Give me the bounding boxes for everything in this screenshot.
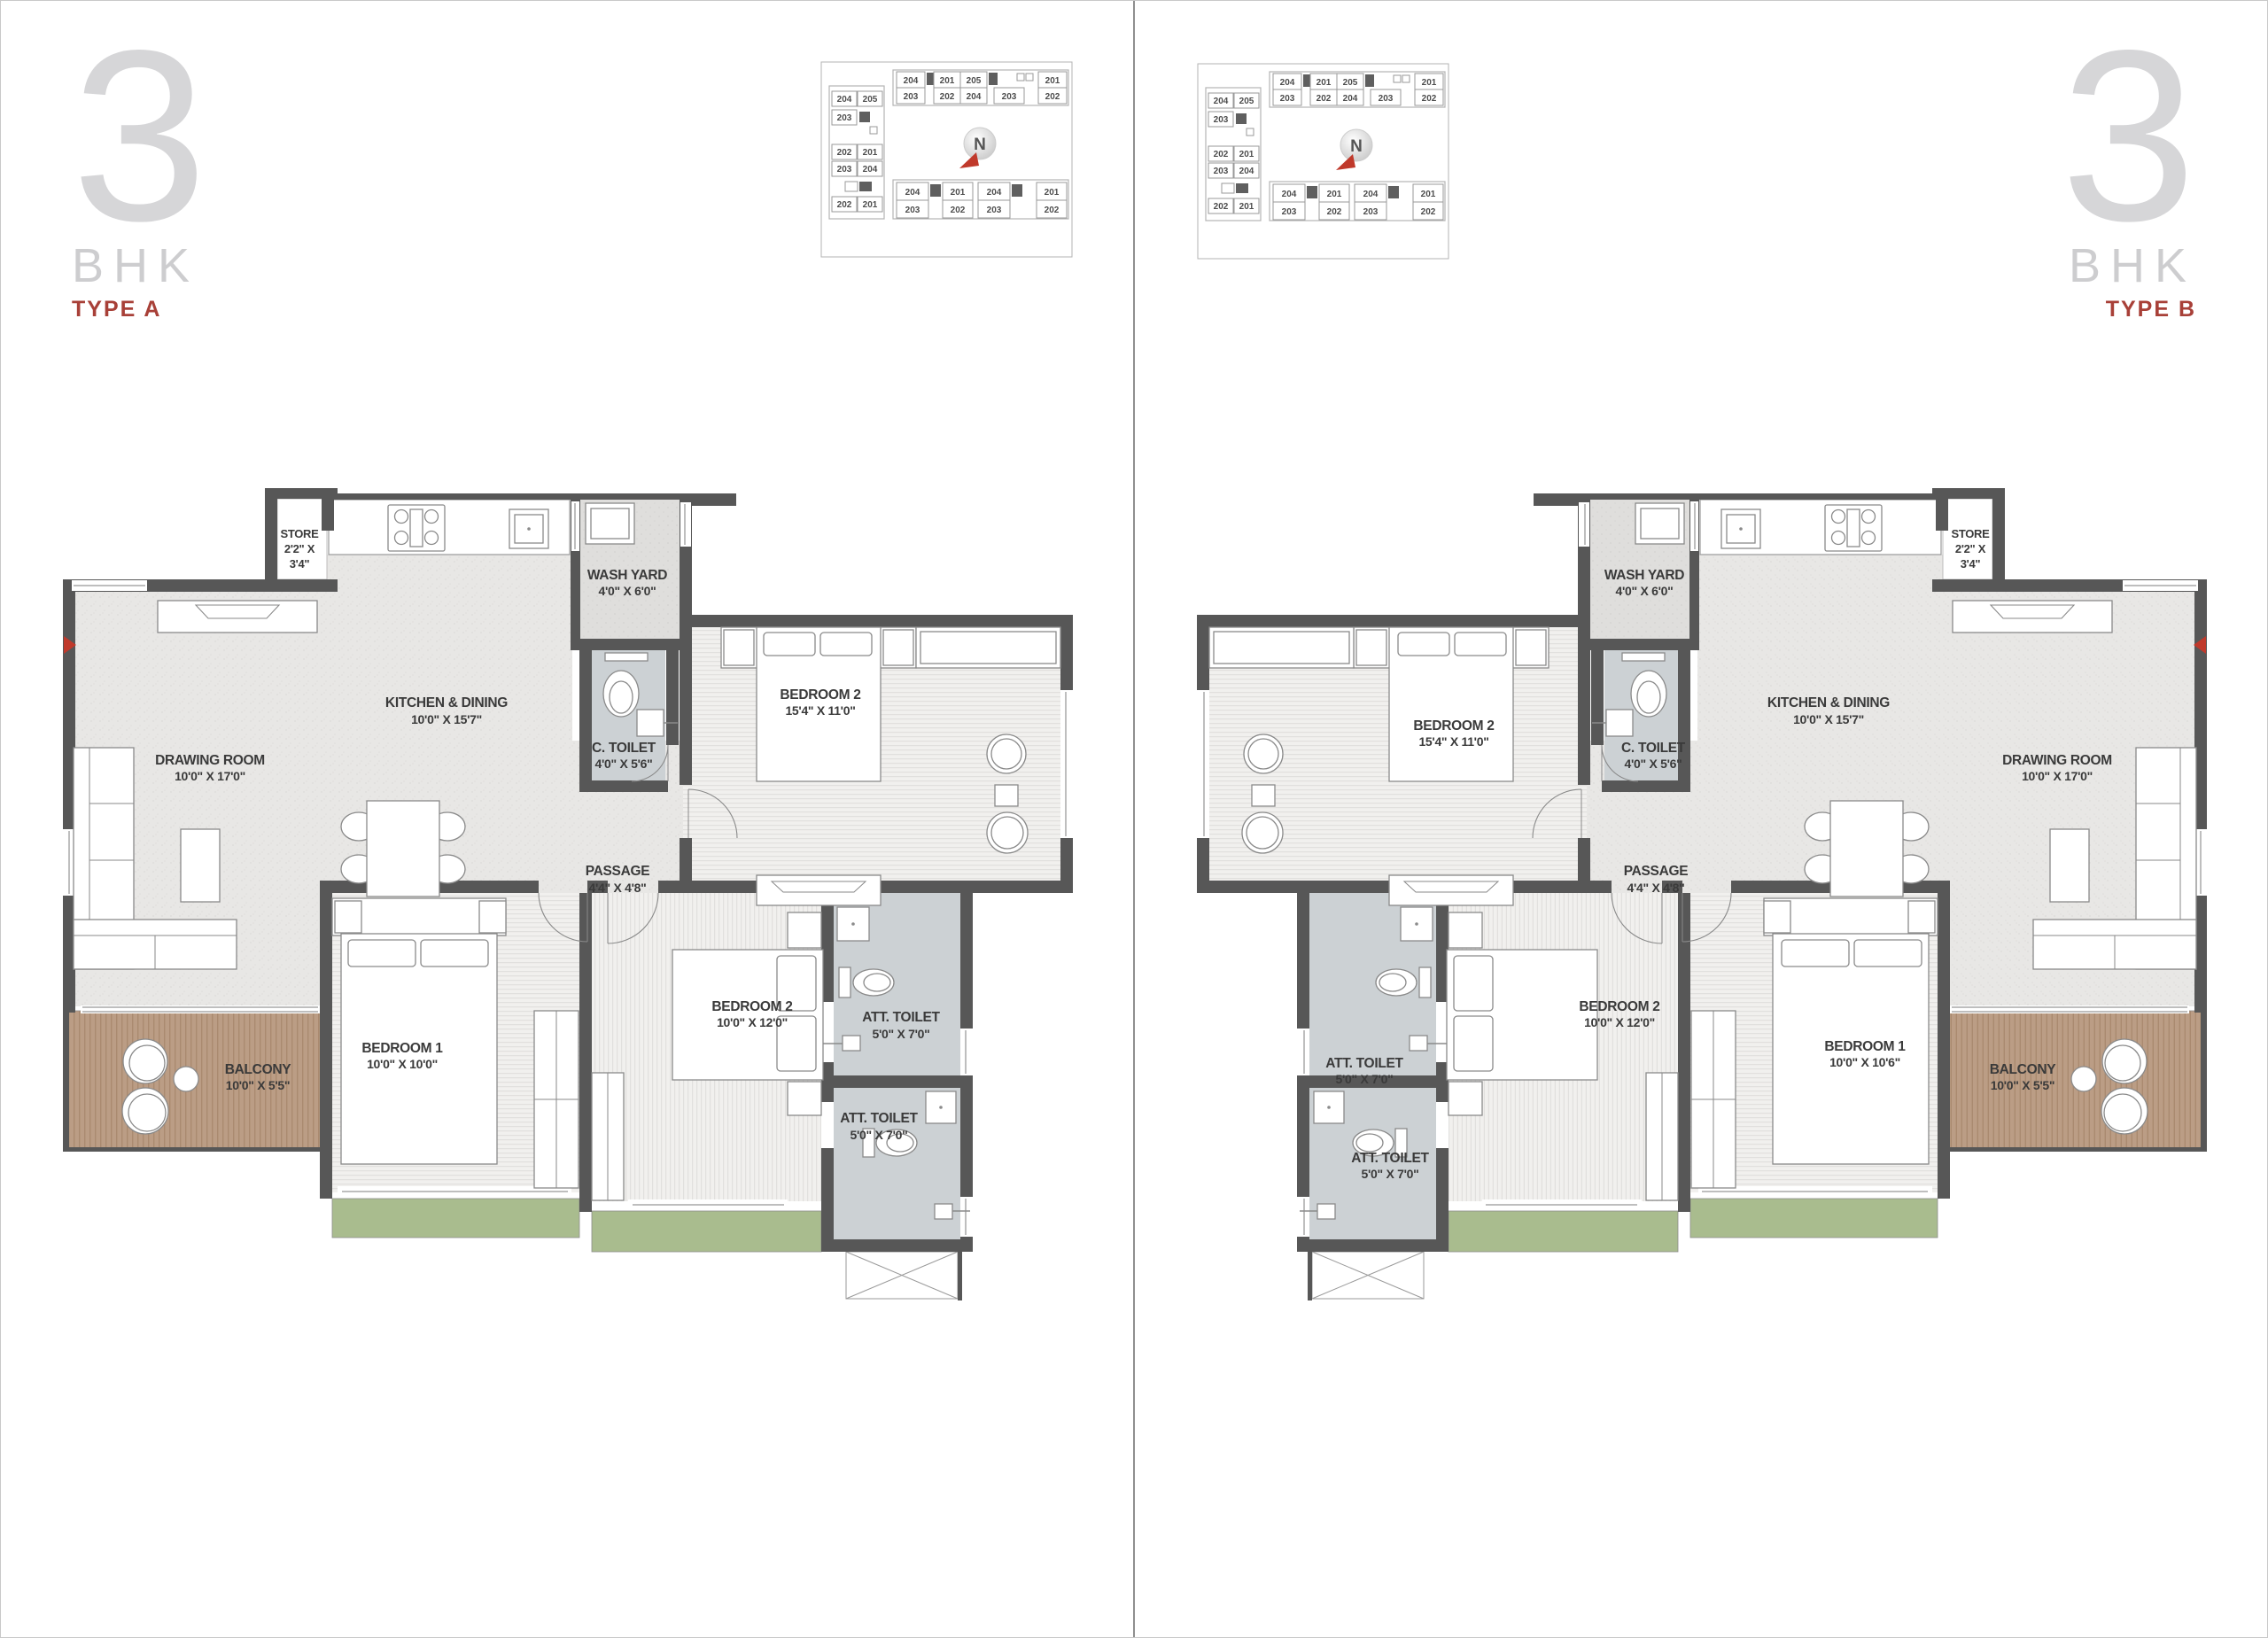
svg-text:204: 204 — [905, 188, 920, 198]
svg-text:204: 204 — [837, 95, 852, 105]
svg-text:10'0" X 10'0": 10'0" X 10'0" — [367, 1057, 438, 1071]
svg-text:202: 202 — [940, 92, 955, 102]
svg-text:10'0" X 5'5": 10'0" X 5'5" — [226, 1078, 290, 1092]
title-typea-label: TYPE A — [72, 297, 207, 322]
svg-text:5'0" X 7'0": 5'0" X 7'0" — [1336, 1072, 1394, 1086]
svg-text:4'0" X 5'6": 4'0" X 5'6" — [1625, 757, 1682, 771]
svg-text:201: 201 — [1422, 78, 1437, 88]
svg-text:203: 203 — [1282, 207, 1297, 217]
svg-text:202: 202 — [837, 200, 852, 210]
svg-text:10'0" X 12'0": 10'0" X 12'0" — [1584, 1015, 1655, 1029]
title-bhk-a: BHK — [72, 238, 207, 293]
floor-plan-type-b: DRAWING ROOM 10'0" X 17'0" KITCHEN & DIN… — [1197, 488, 2207, 1321]
svg-text:10'0" X 5'5": 10'0" X 5'5" — [1991, 1078, 2054, 1092]
svg-text:2'2" X: 2'2" X — [1955, 542, 1986, 555]
room-label-bedroom1-a: BEDROOM 1 — [361, 1041, 443, 1056]
room-label-passage-a: PASSAGE — [586, 864, 650, 879]
room-label-bedroom2bottom-a: BEDROOM 2 — [711, 999, 792, 1014]
svg-text:203: 203 — [1002, 92, 1017, 102]
svg-text:202: 202 — [1421, 207, 1436, 217]
key-plan-type-b: 204 205 203 202 201 203 204 202 201 204 … — [1197, 63, 1449, 260]
svg-text:5'0" X 7'0": 5'0" X 7'0" — [873, 1027, 930, 1041]
room-label-washyard-a: WASH YARD — [587, 568, 667, 583]
svg-text:204: 204 — [1282, 190, 1297, 199]
svg-text:203: 203 — [1363, 207, 1379, 217]
svg-text:204: 204 — [1280, 78, 1295, 88]
svg-text:201: 201 — [1045, 188, 1060, 198]
room-label-atttoilet-lower-a: ATT. TOILET — [840, 1111, 918, 1126]
room-label-balcony-b: BALCONY — [1990, 1062, 2056, 1077]
svg-text:202: 202 — [1214, 150, 1229, 159]
svg-text:205: 205 — [863, 95, 878, 105]
svg-text:205: 205 — [967, 76, 982, 86]
svg-text:15'4" X 11'0": 15'4" X 11'0" — [785, 703, 855, 718]
svg-text:201: 201 — [1045, 76, 1060, 86]
svg-text:201: 201 — [940, 76, 955, 86]
svg-text:201: 201 — [1317, 78, 1332, 88]
room-label-bedroom2top-b: BEDROOM 2 — [1413, 718, 1494, 734]
svg-text:3'4": 3'4" — [290, 557, 310, 571]
room-label-bedroom2bottom-b: BEDROOM 2 — [1579, 999, 1659, 1014]
svg-text:203: 203 — [1379, 94, 1394, 104]
title-typeb-label: TYPE B — [2061, 297, 2196, 322]
svg-text:202: 202 — [951, 206, 966, 215]
title-type-b: 3 BHK TYPE B — [2061, 36, 2196, 322]
room-label-atttoilet-lower-b: ATT. TOILET — [1351, 1151, 1429, 1166]
svg-text:10'0" X 17'0": 10'0" X 17'0" — [175, 769, 245, 783]
svg-text:204: 204 — [904, 76, 919, 86]
svg-text:201: 201 — [1239, 202, 1254, 212]
room-label-washyard-b: WASH YARD — [1604, 568, 1684, 583]
svg-text:5'0" X 7'0": 5'0" X 7'0" — [1362, 1167, 1419, 1181]
key-plan-a-bottom-strip: 204 201 204 201 203 202 203 202 — [897, 182, 1067, 218]
svg-text:4'4" X 4'8": 4'4" X 4'8" — [589, 881, 647, 895]
svg-text:202: 202 — [1045, 206, 1060, 215]
title-type-a: 3 BHK TYPE A — [72, 36, 207, 322]
svg-text:202: 202 — [837, 148, 852, 158]
svg-text:202: 202 — [1422, 94, 1437, 104]
svg-text:202: 202 — [1214, 202, 1229, 212]
room-label-atttoilet-upper-a: ATT. TOILET — [862, 1010, 940, 1025]
svg-text:202: 202 — [1317, 94, 1332, 104]
svg-text:N: N — [974, 136, 986, 154]
svg-text:201: 201 — [863, 148, 878, 158]
svg-text:205: 205 — [1239, 97, 1254, 106]
room-label-ctoilet-b: C. TOILET — [1621, 741, 1686, 756]
title-number-b: 3 — [2061, 36, 2196, 237]
svg-text:201: 201 — [1421, 190, 1436, 199]
room-label-kitchen-b: KITCHEN & DINING — [1767, 695, 1890, 710]
svg-text:204: 204 — [987, 188, 1002, 198]
svg-text:3'4": 3'4" — [1961, 557, 1981, 571]
room-label-kitchen-a: KITCHEN & DINING — [385, 695, 508, 710]
room-label-bedroom2top-a: BEDROOM 2 — [780, 687, 860, 703]
title-number-a: 3 — [72, 36, 207, 237]
svg-text:10'0" X 12'0": 10'0" X 12'0" — [717, 1015, 788, 1029]
svg-text:203: 203 — [905, 206, 920, 215]
svg-text:203: 203 — [987, 206, 1002, 215]
room-label-balcony-a: BALCONY — [225, 1062, 291, 1077]
svg-text:203: 203 — [1214, 115, 1229, 125]
room-label-ctoilet-a: C. TOILET — [592, 741, 656, 756]
center-divider — [1133, 1, 1135, 1638]
room-label-store-b: STORE — [1951, 527, 1990, 540]
svg-text:203: 203 — [837, 113, 852, 123]
svg-text:4'0" X 6'0": 4'0" X 6'0" — [599, 584, 656, 598]
title-bhk-b: BHK — [2061, 238, 2196, 293]
room-label-drawing-b: DRAWING ROOM — [2002, 753, 2112, 768]
svg-text:4'0" X 5'6": 4'0" X 5'6" — [595, 757, 653, 771]
svg-text:4'0" X 6'0": 4'0" X 6'0" — [1616, 584, 1674, 598]
svg-text:10'0" X 15'7": 10'0" X 15'7" — [1793, 712, 1864, 726]
svg-text:203: 203 — [1214, 167, 1229, 176]
svg-text:205: 205 — [1343, 78, 1358, 88]
room-label-atttoilet-upper-b: ATT. TOILET — [1325, 1056, 1403, 1071]
room-label-bedroom1-b: BEDROOM 1 — [1824, 1039, 1906, 1054]
svg-text:204: 204 — [1214, 97, 1229, 106]
svg-text:201: 201 — [863, 200, 878, 210]
svg-text:202: 202 — [1327, 207, 1342, 217]
svg-text:204: 204 — [967, 92, 982, 102]
svg-text:5'0" X 7'0": 5'0" X 7'0" — [850, 1128, 908, 1142]
key-plan-a-top-strip: 204 201 205 201 203 202 204 203 202 — [897, 72, 1067, 104]
svg-text:204: 204 — [863, 165, 878, 175]
svg-text:4'4" X 4'8": 4'4" X 4'8" — [1627, 881, 1685, 895]
svg-text:N: N — [1350, 137, 1363, 156]
floorplan-brochure-page: 3 BHK TYPE A 3 BHK TYPE B — [0, 0, 2268, 1638]
room-label-drawing-a: DRAWING ROOM — [155, 753, 265, 768]
svg-text:204: 204 — [1343, 94, 1358, 104]
svg-text:2'2" X: 2'2" X — [284, 542, 315, 555]
room-label-store-a: STORE — [280, 527, 319, 540]
floor-plan-type-a: DRAWING ROOM 10'0" X 17'0" KITCHEN & DIN… — [63, 488, 1073, 1321]
svg-text:202: 202 — [1045, 92, 1060, 102]
svg-text:201: 201 — [1239, 150, 1254, 159]
svg-text:15'4" X 11'0": 15'4" X 11'0" — [1418, 734, 1488, 749]
svg-text:10'0" X 10'6": 10'0" X 10'6" — [1829, 1055, 1900, 1069]
key-plan-b-top-strip: 204 201 205 201 203 202 204 203 202 — [1273, 74, 1443, 105]
svg-text:203: 203 — [904, 92, 919, 102]
svg-text:201: 201 — [951, 188, 966, 198]
svg-text:203: 203 — [1280, 94, 1295, 104]
svg-text:201: 201 — [1327, 190, 1342, 199]
key-plan-b-bottom-strip: 204 201 204 201 203 202 203 202 — [1273, 184, 1443, 220]
room-label-passage-b: PASSAGE — [1624, 864, 1689, 879]
svg-text:204: 204 — [1239, 167, 1254, 176]
svg-text:203: 203 — [837, 165, 852, 175]
key-plan-type-a: 204 205 203 202 201 203 204 202 201 204 … — [820, 61, 1073, 258]
svg-text:10'0" X 15'7": 10'0" X 15'7" — [411, 712, 482, 726]
svg-text:10'0" X 17'0": 10'0" X 17'0" — [2022, 769, 2093, 783]
svg-text:204: 204 — [1363, 190, 1379, 199]
